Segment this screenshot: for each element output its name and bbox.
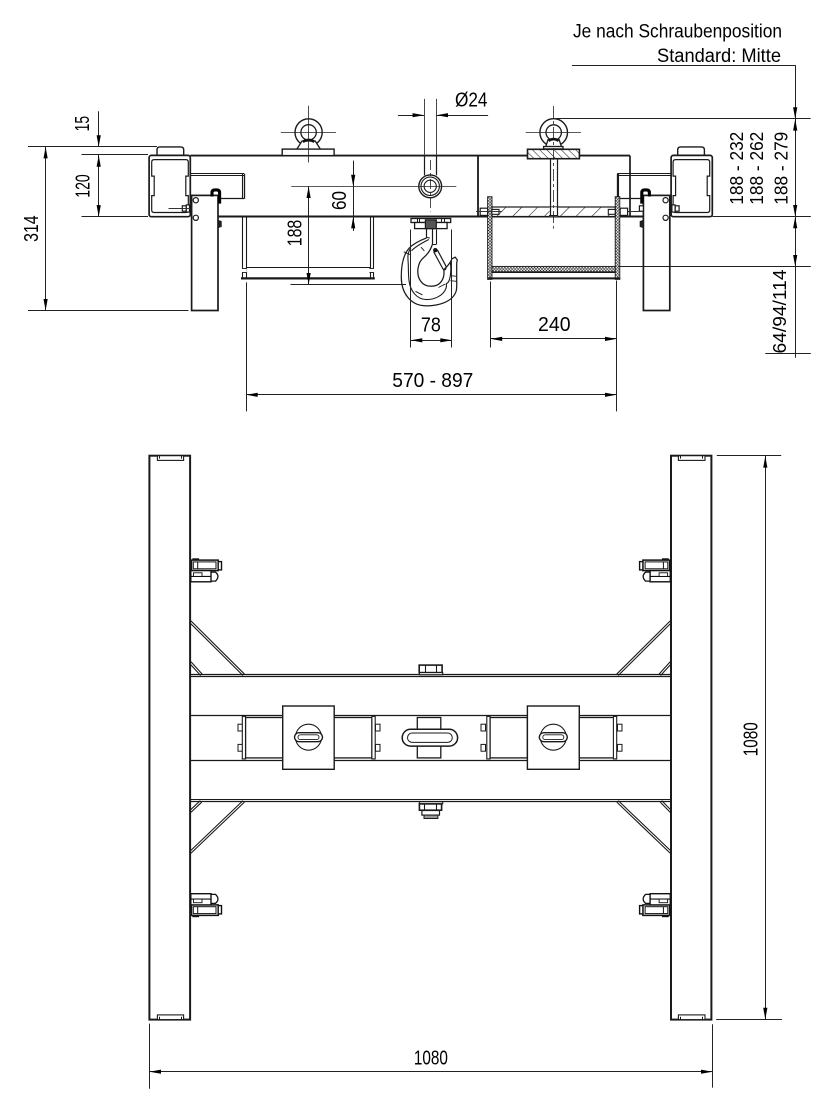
svg-text:64/94/114: 64/94/114 [770,270,790,354]
svg-text:1080: 1080 [741,722,763,756]
svg-text:188 - 232: 188 - 232 [726,132,747,205]
svg-text:120: 120 [72,174,94,198]
svg-text:570 - 897: 570 - 897 [392,370,473,392]
svg-text:188 - 262: 188 - 262 [746,132,767,205]
svg-text:78: 78 [421,315,441,337]
svg-text:1080: 1080 [414,1048,448,1070]
svg-text:Standard: Mitte: Standard: Mitte [657,45,781,67]
svg-text:60: 60 [329,191,351,210]
svg-text:Ø24: Ø24 [455,89,488,111]
svg-text:188: 188 [285,220,307,247]
svg-text:188 - 279: 188 - 279 [770,132,791,205]
svg-text:240: 240 [538,314,571,336]
svg-text:15: 15 [72,116,94,132]
svg-text:314: 314 [21,215,43,242]
svg-text:Je nach Schraubenposition: Je nach Schraubenposition [573,21,782,43]
